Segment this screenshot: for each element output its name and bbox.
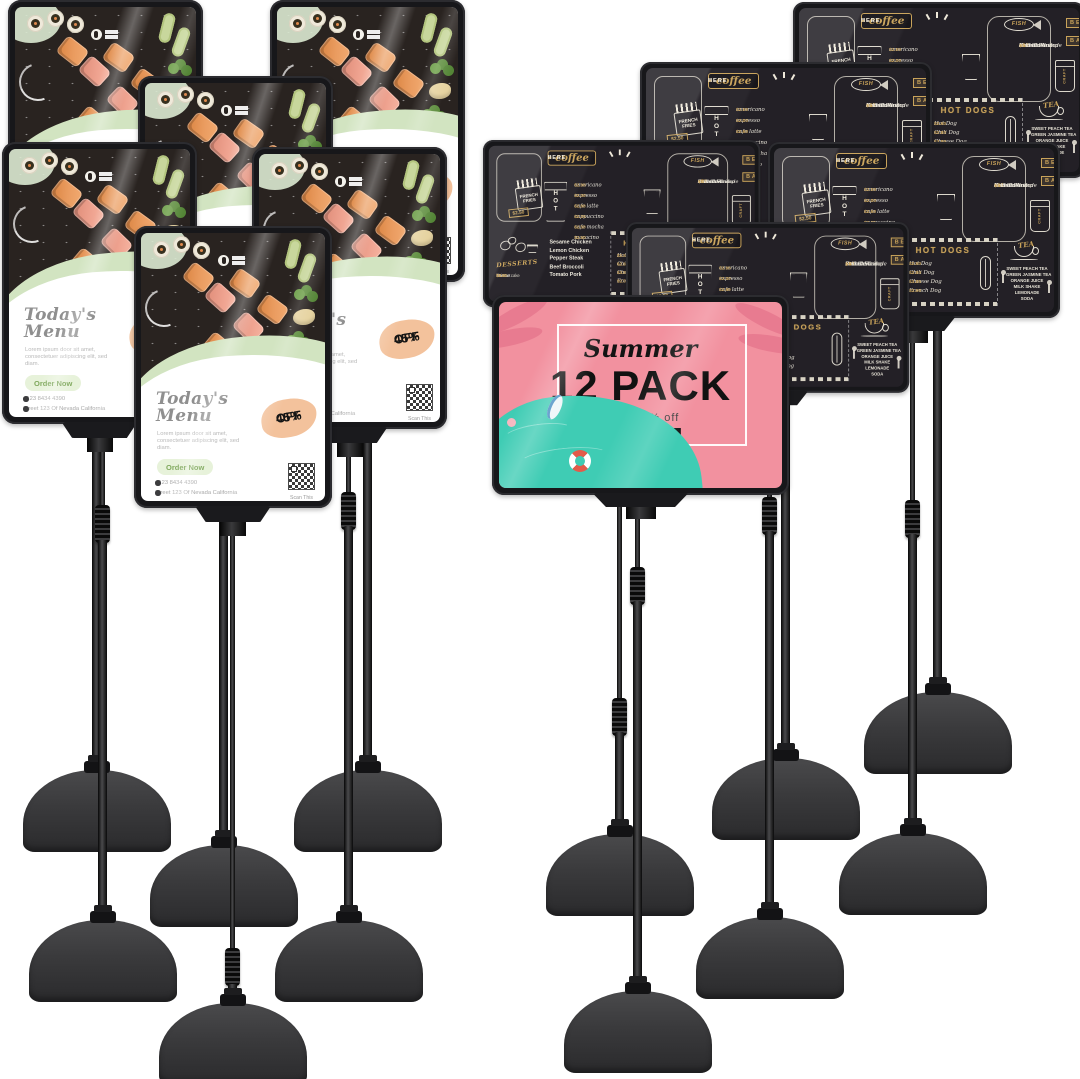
scan-this-label: Scan This — [284, 495, 319, 501]
maki-roll-icon — [193, 242, 210, 259]
rays-icon — [902, 152, 922, 160]
maki-roll-icon — [67, 16, 84, 33]
spoon-icon — [1073, 144, 1075, 153]
rays-icon — [774, 72, 794, 80]
poster-body-text: Lorem ipsum door sit amet, consectetuer … — [157, 431, 251, 453]
lifebuoy-icon — [569, 450, 591, 472]
fish-icon: FISH — [683, 155, 712, 167]
promo-artwork: Summer 12 PACK up to 50% off SHOP NOW — [499, 302, 782, 488]
restaurant-logo-icon — [353, 29, 383, 41]
poster-title: Today's Menu — [156, 391, 228, 425]
location-icon — [23, 406, 29, 412]
stand-pole — [633, 601, 642, 1005]
maki-roll-icon — [271, 162, 288, 179]
sign-neck — [337, 443, 363, 457]
phone-icon — [23, 396, 29, 402]
maki-roll-icon — [329, 16, 346, 33]
slushy-cup-icon — [644, 189, 661, 214]
sauce-swirl — [9, 199, 57, 249]
hotdog-icon — [980, 256, 991, 290]
wasabi-cluster — [437, 59, 448, 70]
entree-list: Sesame Chicken Lemon Chicken Pepper Stea… — [550, 239, 592, 280]
fries-price-tag: $2.50 — [508, 207, 528, 218]
sign-neck — [220, 522, 246, 536]
maki-roll-icon — [291, 157, 308, 174]
hot-dogs-section: HOT DOGS Hot Dog$2.60 Chili Dog$2.80 Che… — [902, 238, 998, 306]
hotdog-icon — [832, 333, 843, 366]
cucumber-slice — [420, 12, 439, 44]
qr-code — [288, 463, 315, 490]
fries-panel: FRENCH FRIES $2.50 — [654, 76, 702, 148]
maki-roll-icon — [177, 86, 194, 103]
product-photo-scene: Today's Menu 45%OFF Lorem ipsum door sit… — [0, 0, 1080, 1079]
fries-panel: FRENCH FRIES $2.50 — [782, 156, 830, 228]
qr-code — [406, 384, 433, 411]
spoon-icon — [1048, 284, 1050, 293]
craft-beer-glass-icon: CRAFT — [880, 278, 899, 309]
snack-doodle-icon — [508, 237, 517, 245]
order-now-button: Order Now — [25, 375, 81, 391]
cucumber-slice — [296, 252, 318, 284]
slushy-cup-icon — [937, 194, 955, 220]
sign-neck — [626, 507, 656, 519]
fries-panel: FRENCH FRIES $2.50 — [496, 153, 542, 221]
fish-panel: FISH Fish Cake $12 Grilled Shrimp $11 Sa… — [814, 236, 876, 319]
sushi-photo — [141, 233, 325, 385]
rays-icon — [610, 150, 629, 158]
beer-bar-sign: BEER BAR — [900, 78, 926, 96]
tea-list: SWEET PEACH TEA GREEN JASMINE TEA ORANGE… — [857, 342, 898, 377]
phone-icon — [155, 480, 161, 486]
cucumber-slice — [164, 168, 186, 200]
scan-this-label: Scan This — [402, 416, 437, 422]
maki-roll-icon — [47, 10, 64, 27]
poster-body-text: Lorem ipsum door sit amet, consectetuer … — [25, 347, 119, 369]
tea-list: SWEET PEACH TEA GREEN JASMINE TEA ORANGE… — [1006, 266, 1048, 303]
sign-neck — [87, 438, 113, 452]
cucumber-slice — [158, 12, 177, 44]
cucumber-slice — [414, 173, 436, 205]
cucumber-slice — [284, 238, 303, 270]
maki-roll-icon — [289, 15, 306, 32]
maki-roll-icon — [173, 236, 190, 253]
maki-roll-icon — [197, 92, 214, 109]
poster-artwork: Today's Menu 45%OFF Lorem ipsum door sit… — [141, 233, 325, 501]
sauce-swirl — [141, 283, 189, 333]
maki-roll-icon — [41, 152, 58, 169]
maki-roll-icon — [153, 241, 170, 258]
maki-roll-icon — [21, 157, 38, 174]
sign-bracket — [593, 493, 689, 507]
sign-bracket — [62, 422, 138, 438]
restaurant-logo-icon — [218, 255, 248, 267]
fish-icon: FISH — [979, 158, 1009, 171]
french-fries-icon: FRENCH FRIES — [658, 268, 687, 295]
fish-icon: FISH — [831, 237, 860, 250]
fish-icon: FISH — [851, 78, 881, 91]
hot-dog-list: Hot Dog$2.60 Chili Dog$2.80 Cheese Dog$3… — [909, 258, 981, 294]
salmon-sushi — [391, 67, 425, 100]
ginger-blob — [293, 309, 315, 325]
slushy-cup-icon — [809, 114, 827, 140]
ginger-blob — [429, 83, 451, 99]
fish-panel: FISH Fish Cake $12 Grilled Shrimp $11 Sa… — [962, 156, 1026, 242]
stand-pole — [635, 512, 640, 572]
rays-icon — [756, 232, 775, 240]
cucumber-slice — [288, 88, 307, 120]
slushy-cup-icon — [962, 54, 980, 80]
maki-roll-icon — [157, 91, 174, 108]
cucumber-slice — [432, 26, 454, 58]
slushy-cup-icon — [790, 272, 807, 297]
restaurant-logo-icon — [221, 105, 251, 117]
maki-roll-icon — [27, 15, 44, 32]
cucumber-slice — [152, 154, 171, 186]
french-fries-icon: FRENCH FRIES — [673, 109, 703, 137]
address-row: Street 123 Of Nevada California — [155, 490, 285, 496]
wasabi-cluster — [169, 201, 180, 212]
rays-icon — [927, 12, 947, 20]
cucumber-slice — [300, 102, 322, 134]
salmon-sushi — [373, 214, 407, 247]
craft-beer-glass-icon: CRAFT — [732, 195, 751, 225]
craft-beer-glass-icon: CRAFT — [1055, 60, 1075, 92]
phone-row: +123 8434 4390 — [155, 480, 285, 486]
fish-panel: FISH Fish Cake $12 Grilled Shrimp $11 Sa… — [987, 16, 1051, 102]
stand-base — [564, 991, 712, 1073]
maki-roll-icon — [309, 10, 326, 27]
beer-bar-sign: BEER BAR — [730, 155, 755, 172]
salmon-sushi — [255, 293, 289, 326]
wasabi-cluster — [305, 135, 316, 146]
ginger-blob — [411, 230, 433, 246]
sign-bracket — [195, 506, 271, 522]
fish-icon: FISH — [1004, 18, 1034, 31]
french-fries-icon: FRENCH FRIES — [801, 189, 831, 217]
cucumber-slice — [170, 26, 192, 58]
cucumber-slice — [402, 159, 421, 191]
base-collar — [625, 982, 651, 994]
maki-roll-icon — [311, 163, 328, 180]
pink-ball — [507, 418, 516, 427]
cupcake-icon — [527, 245, 538, 254]
menu-poster-sign: Today's Menu 45%OFF Lorem ipsum door sit… — [134, 226, 332, 508]
spoon-icon — [898, 360, 900, 369]
poster-title: Today's Menu — [24, 307, 96, 341]
restaurant-logo-icon — [85, 171, 115, 183]
wasabi-cluster — [301, 285, 312, 296]
maki-roll-icon — [61, 158, 78, 175]
order-now-button: Order Now — [157, 459, 213, 475]
spoon-icon — [853, 350, 855, 359]
sauce-swirl — [15, 57, 63, 107]
french-fries-icon: FRENCH FRIES — [515, 185, 544, 211]
summer-script-text: Summer — [499, 334, 782, 363]
wasabi-cluster — [419, 206, 430, 217]
beer-bar-sign: BEER BAR — [1028, 158, 1054, 176]
beer-bar-sign: BEER BAR — [1053, 18, 1079, 36]
restaurant-logo-icon — [335, 176, 365, 188]
hot-coffee-cup-icon: HOT — [544, 182, 568, 222]
location-icon — [155, 490, 161, 496]
craft-beer-glass-icon: CRAFT — [1030, 200, 1050, 232]
wasabi-cluster — [175, 59, 186, 70]
beer-bar-sign: BEER BAR — [878, 238, 903, 255]
restaurant-logo-icon — [91, 29, 121, 41]
height-adjuster-knob — [630, 567, 645, 605]
spoon-icon — [1002, 274, 1004, 283]
summer-promo-sign: Summer 12 PACK up to 50% off SHOP NOW — [492, 295, 789, 495]
